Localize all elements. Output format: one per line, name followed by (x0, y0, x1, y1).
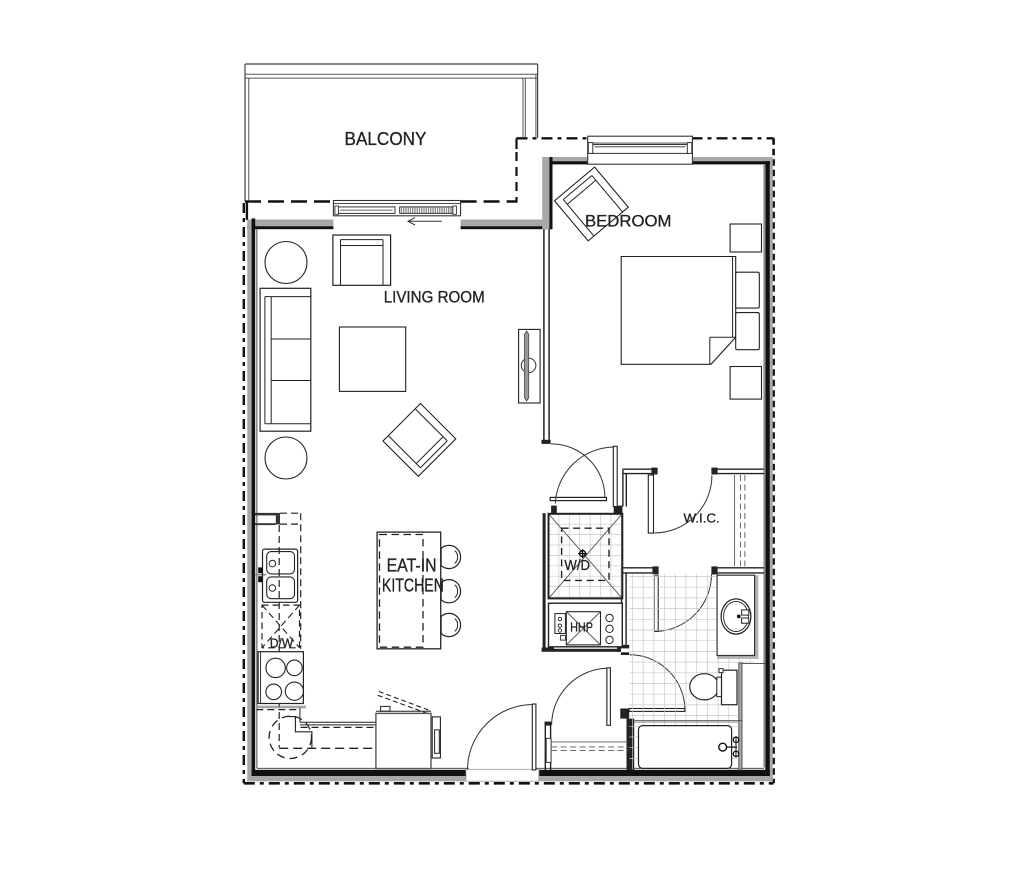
svg-text:BEDROOM: BEDROOM (585, 212, 671, 230)
svg-text:EAT-IN: EAT-IN (387, 554, 437, 575)
svg-text:LIVING ROOM: LIVING ROOM (384, 289, 485, 307)
svg-text:W/D: W/D (564, 557, 590, 574)
svg-text:BALCONY: BALCONY (345, 128, 427, 149)
svg-text:HHP: HHP (570, 619, 593, 634)
svg-text:D/W: D/W (270, 637, 293, 651)
svg-text:KITCHEN: KITCHEN (382, 574, 444, 595)
svg-text:W.I.C.: W.I.C. (684, 511, 720, 526)
